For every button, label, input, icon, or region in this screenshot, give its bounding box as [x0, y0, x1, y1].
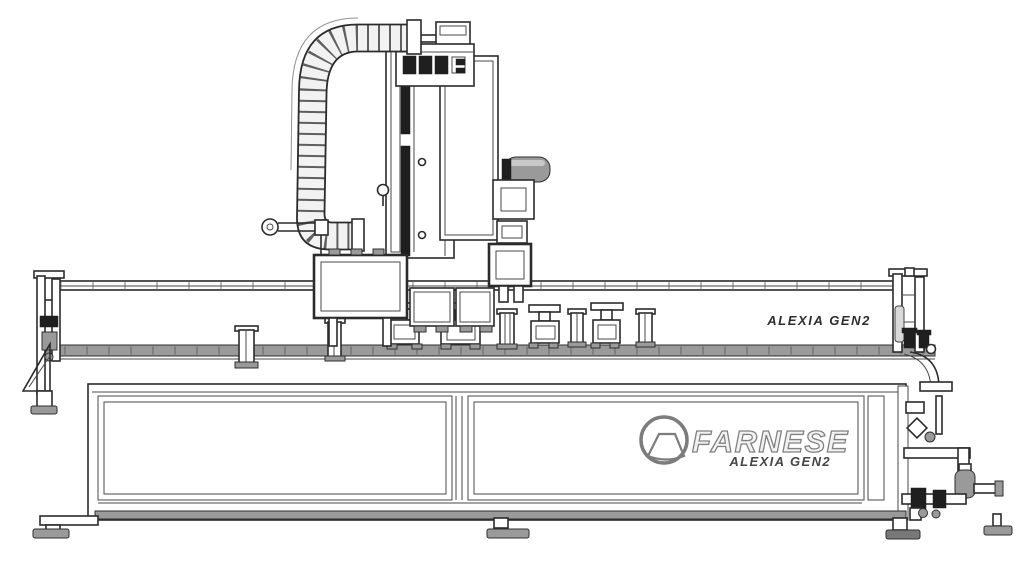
valve-body: [933, 490, 946, 508]
leveling-foot: [33, 516, 98, 538]
column-base-boxes: [410, 288, 494, 332]
chain-anchor-bottom: [352, 219, 364, 251]
pneumatic-unit: [902, 396, 1003, 520]
machine-illustration: FARNESE ALEXIA GEN2: [0, 0, 1024, 576]
technical-drawing-svg: FARNESE ALEXIA GEN2: [0, 0, 1024, 576]
solenoid-valve: [403, 56, 416, 74]
bed-model-label: ALEXIA GEN2: [766, 313, 871, 328]
stop-post: [568, 309, 586, 347]
solenoid-valve: [419, 56, 432, 74]
stop-post: [235, 326, 258, 368]
left-door-panel: [98, 396, 452, 500]
tool-unit: [489, 244, 531, 286]
leveling-foot: [886, 518, 920, 539]
work-clamp: [529, 305, 560, 348]
leveling-foot: [984, 514, 1012, 535]
right-end-frame: [889, 268, 952, 391]
chain-anchor-top: [407, 20, 421, 54]
leveling-foot: [487, 518, 529, 538]
linear-rail: [401, 146, 410, 256]
valve-body: [911, 488, 926, 509]
work-clamp: [591, 303, 623, 348]
solenoid-valve: [435, 56, 448, 74]
stop-post: [636, 309, 655, 347]
grease-port: [378, 185, 389, 196]
logo-model-text: ALEXIA GEN2: [728, 454, 831, 469]
stop-post: [497, 309, 517, 349]
handle-knob: [904, 331, 915, 348]
left-end-frame: [23, 271, 64, 414]
bed-deck: [40, 345, 935, 359]
